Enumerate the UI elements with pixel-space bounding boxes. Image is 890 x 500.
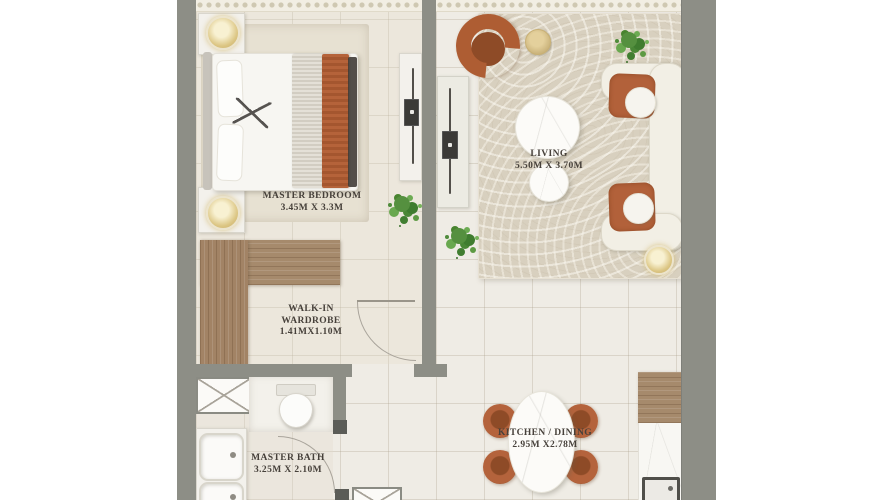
wardrobe-unit-side — [200, 240, 248, 366]
living-name: LIVING — [489, 149, 609, 161]
wall-right — [681, 0, 716, 500]
bedroom-tv-mount-dot — [410, 110, 414, 114]
master-bedroom-dims: 3.45M X 3.3M — [232, 203, 392, 215]
room-label-living: LIVING 5.50M X 3.70M — [489, 149, 609, 172]
bed-foot-bench — [348, 57, 357, 187]
bed-pillow-bottom — [216, 124, 244, 182]
window-trim-bedroom — [196, 0, 422, 12]
sofa-pillow-bottom — [623, 193, 654, 224]
wall-bath-east — [333, 377, 346, 422]
floor-plan: MASTER BEDROOM 3.45M X 3.3M LIVING 5.50M… — [0, 0, 890, 500]
wardrobe-name-line2: WARDROBE — [261, 316, 361, 328]
sofa-pillow-top — [625, 87, 656, 118]
room-label-master-bath: MASTER BATH 3.25M X 2.10M — [218, 453, 358, 476]
master-bath-name: MASTER BATH — [218, 453, 358, 465]
kitchen-dining-name: KITCHEN / DINING — [475, 428, 615, 440]
living-plant — [621, 32, 637, 48]
living-tv-mount-dot — [448, 143, 452, 147]
window-trim-living — [436, 0, 681, 12]
bed-throw-accent — [232, 98, 271, 129]
floor-lamp — [644, 245, 674, 275]
wall-left — [177, 0, 196, 500]
vanity-faucet-2 — [230, 494, 236, 500]
vanity-sink-2 — [199, 482, 244, 500]
bed-headboard — [203, 52, 212, 190]
shower-tray — [196, 377, 252, 414]
wall-center — [422, 0, 436, 377]
wardrobe-name-line1: WALK-IN — [261, 304, 361, 316]
kitchen-cabinet — [638, 372, 681, 423]
wall-wardrobe-south-left — [196, 364, 352, 377]
wall-wardrobe-south-right — [414, 364, 447, 377]
bedroom-plant — [394, 196, 410, 212]
linen-closet — [352, 487, 402, 500]
side-table-gold — [525, 29, 551, 55]
room-label-walk-in-wardrobe: WALK-IN WARDROBE 1.41MX1.10M — [261, 304, 361, 339]
bed-runner-terracotta — [322, 54, 349, 188]
bed-runner-silver — [292, 54, 324, 188]
bedside-lamp-top — [206, 16, 240, 50]
kitchen-sink — [642, 477, 680, 500]
kitchen-faucet — [668, 486, 673, 491]
wall-stub-bath-door-bottom — [335, 489, 349, 500]
master-bath-dims: 3.25M X 2.10M — [218, 465, 358, 477]
master-bedroom-name: MASTER BEDROOM — [232, 191, 392, 203]
room-label-kitchen-dining: KITCHEN / DINING 2.95M X2.78M — [475, 428, 615, 451]
wall-stub-bath-door-top — [333, 420, 347, 434]
hallway-plant — [451, 228, 467, 244]
room-label-master-bedroom: MASTER BEDROOM 3.45M X 3.3M — [232, 191, 392, 214]
living-dims: 5.50M X 3.70M — [489, 161, 609, 173]
wardrobe-dims: 1.41MX1.10M — [261, 327, 361, 339]
kitchen-dining-dims: 2.95M X2.78M — [475, 440, 615, 452]
